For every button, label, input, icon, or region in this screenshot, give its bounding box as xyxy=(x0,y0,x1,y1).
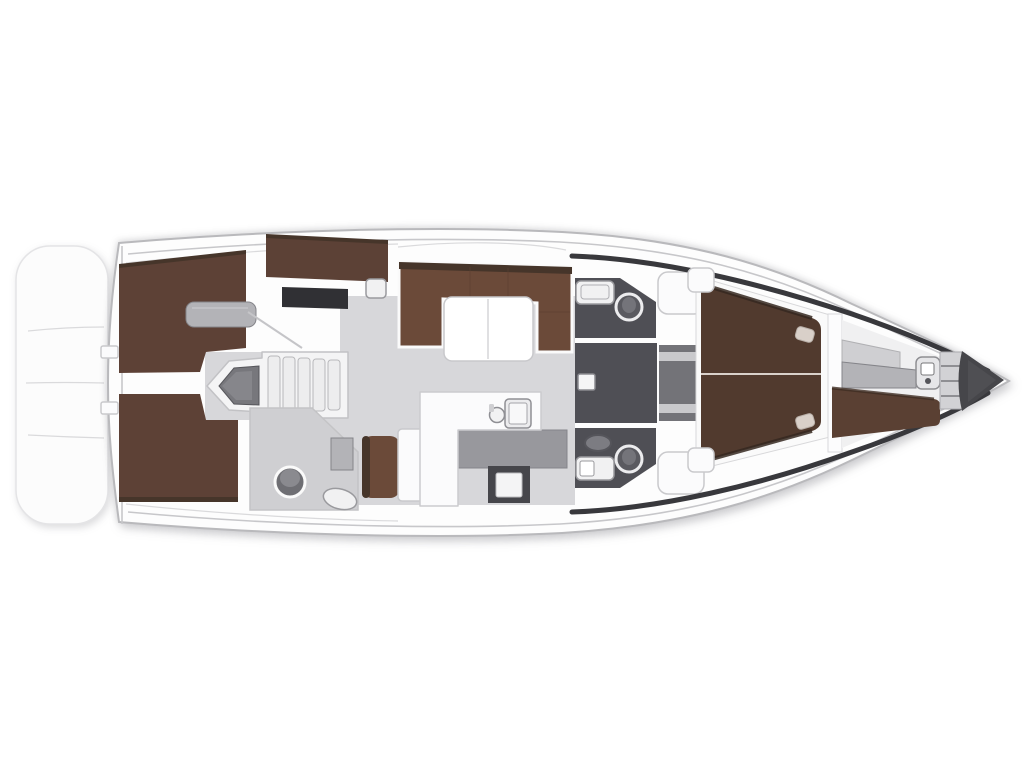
stair-step xyxy=(298,358,310,412)
square-sink-bowl xyxy=(509,403,527,424)
stair-step xyxy=(283,357,295,413)
door-rail xyxy=(659,404,699,413)
swim-platform-deck xyxy=(16,246,108,524)
sink-unit xyxy=(576,281,614,304)
salon xyxy=(399,262,572,361)
door-rail xyxy=(659,352,699,361)
toilet-lid xyxy=(622,297,636,313)
bed-shelf xyxy=(186,302,256,327)
windlass-hatch xyxy=(921,363,934,375)
floorplan-svg: Sailing yacht interior layout plan, bow … xyxy=(0,0,1024,768)
anchor-locker xyxy=(959,351,1005,411)
interior xyxy=(101,234,1004,527)
windlass-gypsy xyxy=(925,378,931,384)
transom-step xyxy=(101,346,118,358)
stove-top xyxy=(496,473,522,497)
locker-dark xyxy=(282,287,348,309)
stair-step xyxy=(328,360,340,410)
swim-platform xyxy=(16,246,108,524)
faucet xyxy=(489,404,494,412)
berth-panel xyxy=(266,238,388,282)
mast-step xyxy=(578,374,595,390)
cabin-sink xyxy=(366,279,386,298)
bedside-table xyxy=(688,268,714,292)
transom-step xyxy=(101,402,118,414)
shower-unit xyxy=(331,438,353,470)
stair-step xyxy=(268,356,280,414)
shower-seat xyxy=(585,435,611,451)
platform-step-line xyxy=(26,383,104,384)
bed-foot-shadow xyxy=(119,497,238,502)
toilet-lid xyxy=(622,449,636,465)
yacht-floorplan: Sailing yacht interior layout plan, bow … xyxy=(0,0,1024,768)
worktop-dark xyxy=(457,430,567,468)
stair-step xyxy=(313,359,325,411)
sink-bowl xyxy=(580,461,594,476)
corridor xyxy=(575,343,699,423)
bedside-table xyxy=(688,448,714,472)
nav-seat-edge xyxy=(362,436,370,498)
toilet-lid xyxy=(280,469,300,487)
